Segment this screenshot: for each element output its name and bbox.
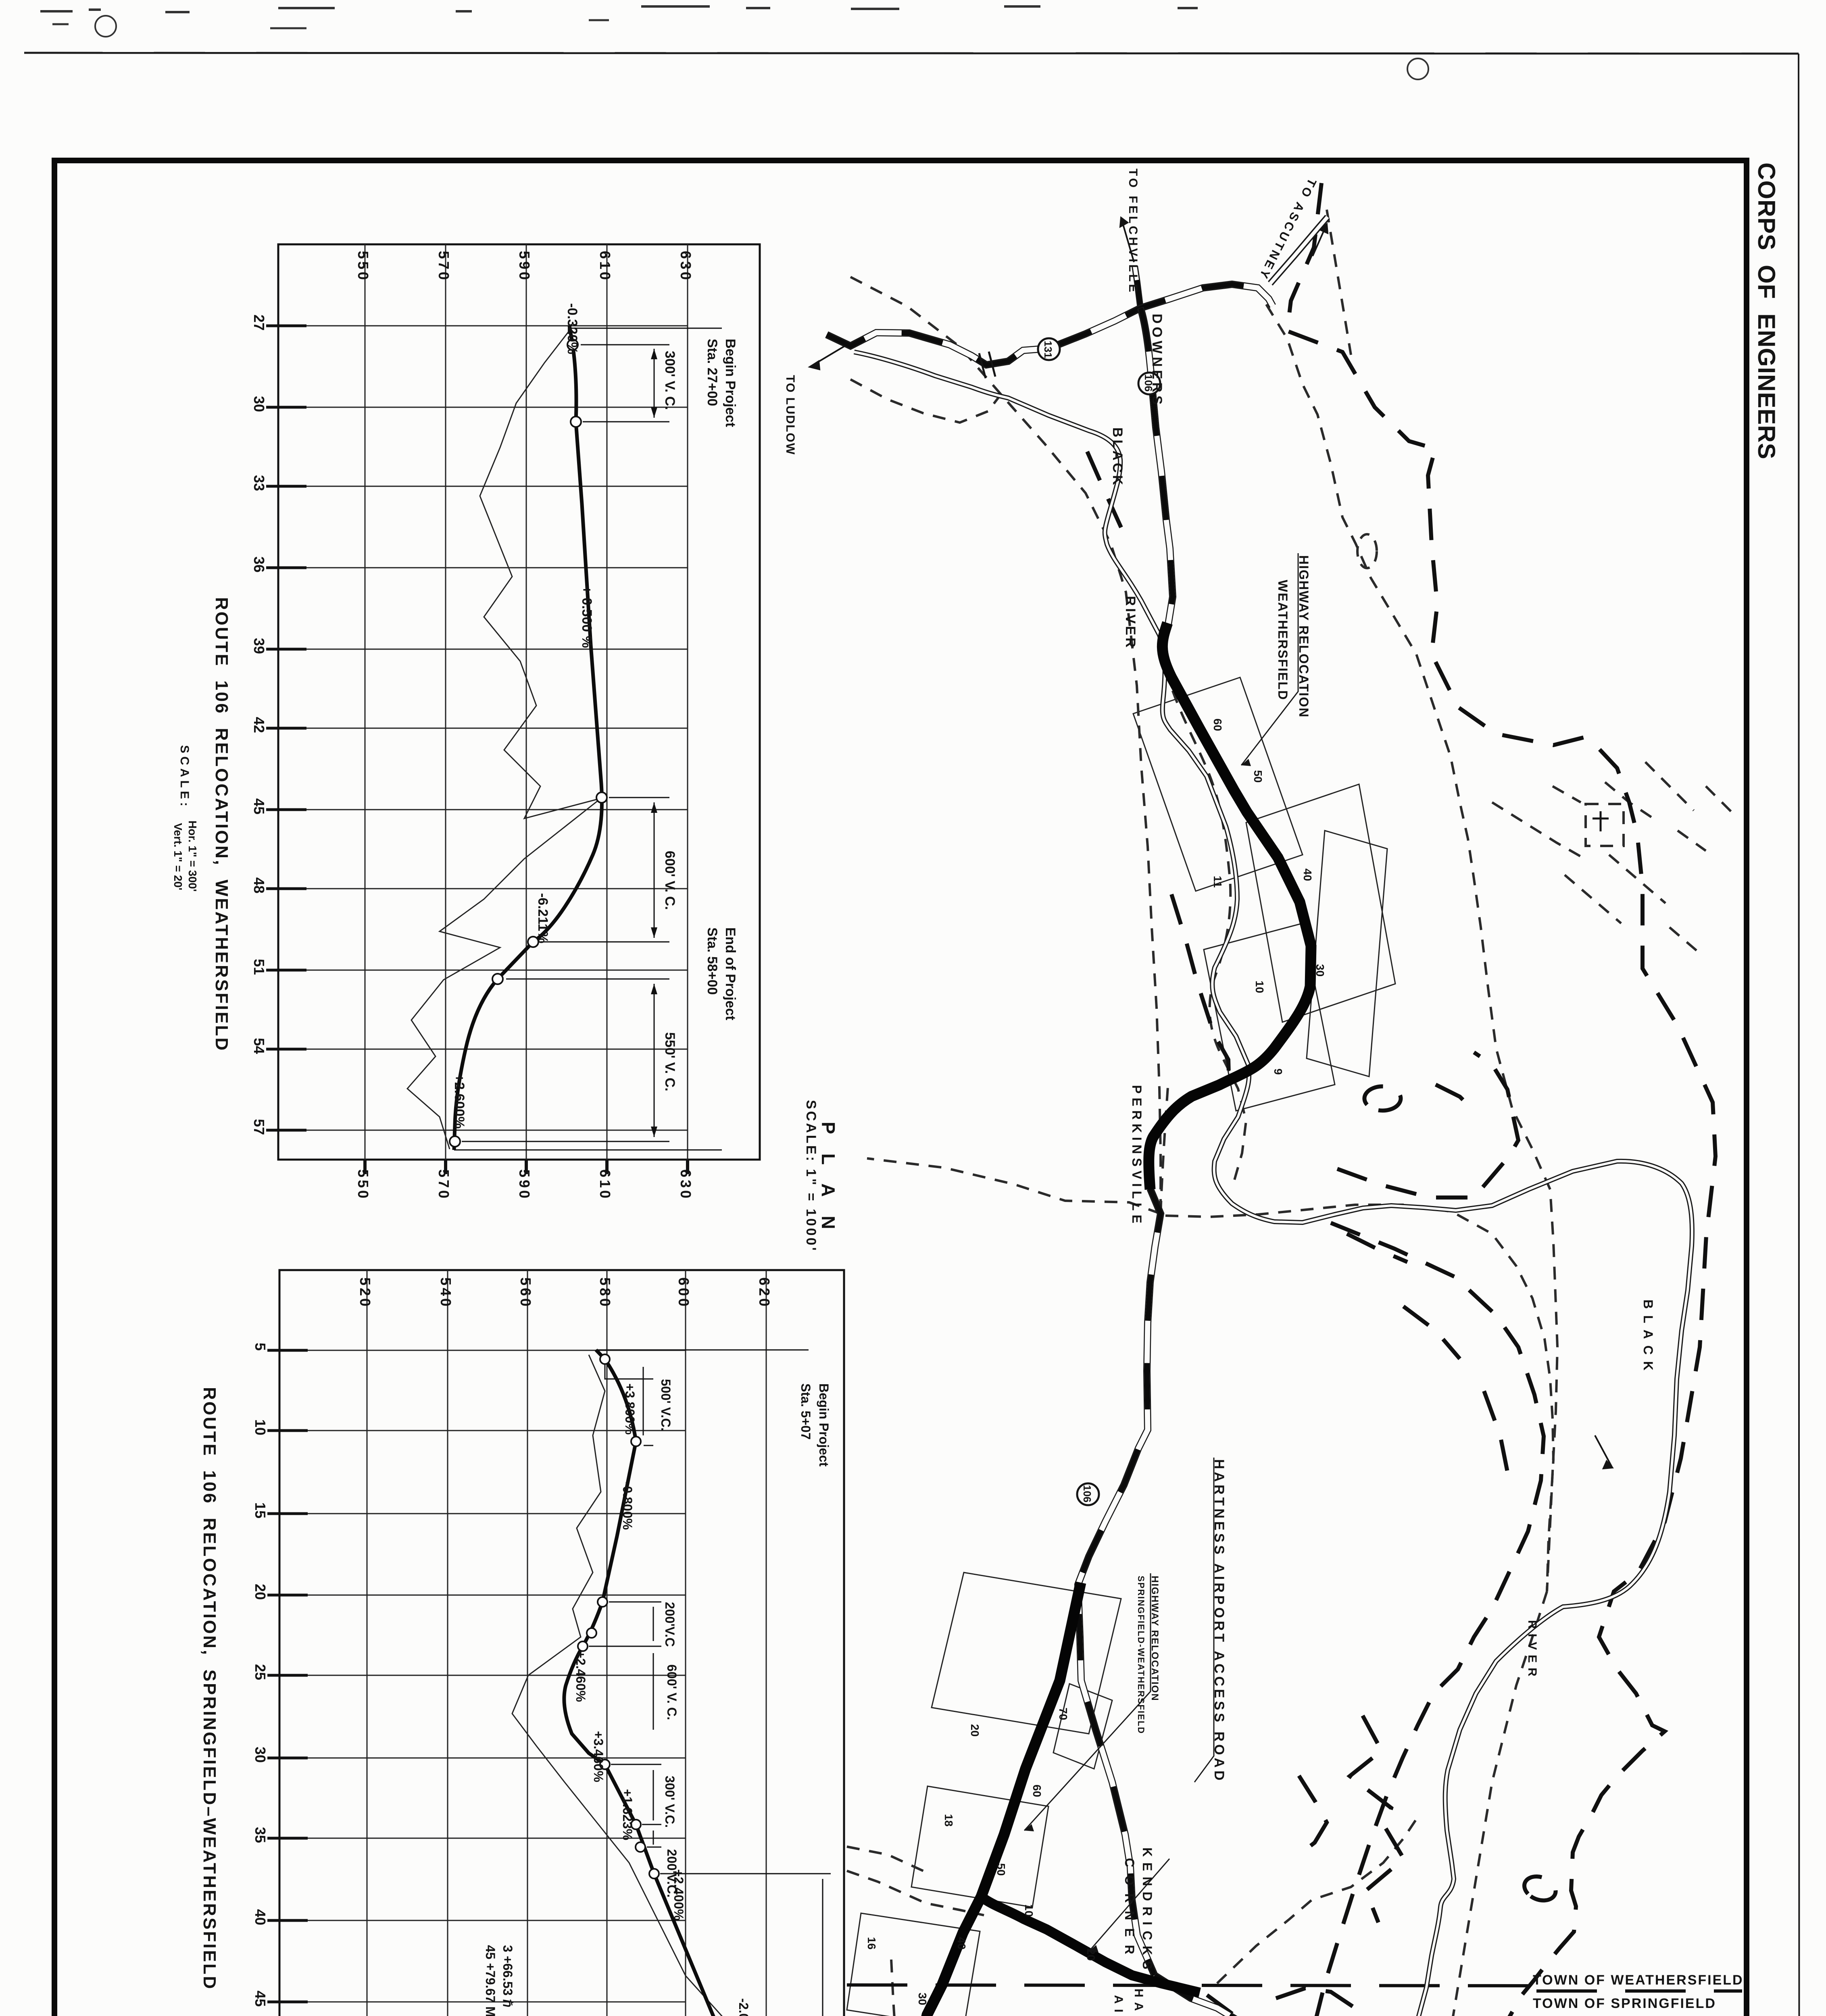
svg-text:590: 590 (516, 251, 533, 282)
svg-text:50: 50 (995, 1863, 1007, 1876)
svg-text:CORNER: CORNER (1122, 1858, 1137, 1962)
svg-text:BLACK: BLACK (1641, 1300, 1655, 1377)
svg-text:KENDRICKS: KENDRICKS (1140, 1847, 1155, 1975)
svg-text:HARTNESS AIRPORT ACCESS ROA: HARTNESS AIRPORT ACCESS ROAD (1211, 1459, 1227, 1783)
svg-text:630: 630 (677, 1169, 694, 1201)
svg-text:WEATHERSFIELD: WEATHERSFIELD (1276, 580, 1290, 700)
svg-text:-0.800%: -0.800% (620, 1482, 635, 1530)
svg-text:End of Project: End of Project (723, 927, 738, 1020)
svg-text:+2.460%: +2.460% (573, 1651, 588, 1702)
svg-text:SCALE:: SCALE: (178, 745, 191, 810)
svg-text:630: 630 (677, 251, 694, 282)
svg-text:SCALE: 1" = 1000': SCALE: 1" = 1000' (803, 1100, 819, 1253)
svg-text:TOWN OF WEATHERSFIELD: TOWN OF WEATHERSFIELD (1533, 1972, 1744, 1988)
svg-text:Hor. 1" = 300': Hor. 1" = 300' (186, 821, 199, 891)
svg-text:-6.211%: -6.211% (535, 893, 550, 943)
svg-text:+3.800%: +3.800% (623, 1383, 637, 1435)
svg-text:45 +79.67 M =: 45 +79.67 M = (483, 1945, 498, 2016)
svg-text:40: 40 (955, 1937, 968, 1949)
svg-text:+1.623%: +1.623% (620, 1789, 635, 1840)
svg-text:550: 550 (355, 251, 371, 282)
svg-text:Begin Project: Begin Project (817, 1383, 831, 1467)
svg-text:33: 33 (251, 475, 267, 491)
svg-text:40: 40 (252, 1909, 269, 1925)
svg-text:560: 560 (517, 1277, 534, 1309)
svg-text:600' V. C.: 600' V. C. (665, 1664, 679, 1720)
svg-text:TO LUDLOW: TO LUDLOW (784, 375, 797, 455)
svg-text:45: 45 (251, 798, 267, 814)
svg-text:HARTNESS: HARTNESS (1132, 1989, 1145, 2016)
svg-text:106: 106 (1081, 1485, 1093, 1502)
svg-text:45: 45 (252, 1991, 269, 2007)
svg-text:550' V. C.: 550' V. C. (662, 1032, 677, 1091)
svg-text:60: 60 (1211, 719, 1224, 731)
svg-text:CORPS OF ENGINEERS: CORPS OF ENGINEERS (1753, 162, 1780, 460)
svg-text:DOWNERS: DOWNERS (1149, 314, 1165, 408)
svg-text:570: 570 (436, 251, 452, 282)
svg-text:51: 51 (251, 959, 267, 975)
svg-text:600: 600 (675, 1277, 692, 1309)
svg-text:520: 520 (357, 1277, 373, 1309)
svg-text:36: 36 (251, 556, 267, 573)
svg-text:20: 20 (252, 1584, 269, 1600)
svg-text:ROUTE 106 RELOCATION, WEATH: ROUTE 106 RELOCATION, WEATHERSFIELD (212, 597, 231, 1052)
svg-text:300' V. C.: 300' V. C. (662, 351, 677, 410)
svg-text:16: 16 (865, 1937, 878, 1949)
svg-text:70: 70 (1057, 1708, 1069, 1720)
svg-text:30: 30 (1314, 964, 1326, 977)
svg-text:30: 30 (251, 396, 267, 412)
svg-text:131: 131 (1042, 341, 1054, 358)
svg-text:HIGHWAY RELOCATION: HIGHWAY RELOCATION (1297, 555, 1311, 718)
svg-text:-2.080%: -2.080% (736, 1998, 751, 2016)
svg-text:Sta. 58+00: Sta. 58+00 (705, 927, 720, 995)
svg-text:50: 50 (1252, 770, 1264, 783)
svg-text:600' V. C.: 600' V. C. (662, 851, 677, 910)
svg-text:18: 18 (942, 1814, 955, 1826)
svg-text:540: 540 (438, 1277, 454, 1309)
svg-text:HIGHWAY RELOCATION: HIGHWAY RELOCATION (1149, 1576, 1160, 1702)
svg-text:TOWN OF SPRINGFIELD: TOWN OF SPRINGFIELD (1533, 1996, 1716, 2011)
svg-text:550: 550 (355, 1169, 371, 1201)
svg-text:10: 10 (252, 1419, 269, 1435)
svg-text:3 +66.53 ℏ: 3 +66.53 ℏ (500, 1945, 515, 2008)
svg-text:15: 15 (252, 1502, 269, 1518)
svg-text:20: 20 (969, 1724, 981, 1737)
svg-text:Vert. 1" = 20': Vert. 1" = 20' (172, 823, 184, 890)
svg-text:35: 35 (252, 1827, 269, 1843)
svg-text:+ 0.500 %: + 0.500 % (579, 586, 594, 648)
svg-text:500' V.C.: 500' V.C. (659, 1379, 673, 1431)
svg-text:27: 27 (251, 314, 267, 331)
svg-text:ROUTE 106 RELOCATION, SPRIN: ROUTE 106 RELOCATION, SPRINGFIELD–WEATHE… (200, 1387, 219, 1990)
svg-text:39: 39 (251, 638, 267, 654)
svg-text:RIVER: RIVER (1123, 596, 1138, 650)
svg-text:+3.460%: +3.460% (591, 1731, 606, 1782)
svg-text:48: 48 (251, 877, 267, 893)
svg-text:+2.600%: +2.600% (452, 1074, 467, 1129)
svg-text:300' V.C.: 300' V.C. (663, 1776, 677, 1828)
svg-text:610: 610 (597, 1169, 613, 1201)
svg-text:PERKINSVILLE: PERKINSVILLE (1130, 1085, 1144, 1227)
svg-text:10: 10 (1023, 1904, 1035, 1917)
svg-text:590: 590 (516, 1169, 533, 1201)
svg-text:610: 610 (597, 251, 613, 282)
svg-text:TO FELCHVILLE: TO FELCHVILLE (1126, 169, 1140, 294)
svg-text:10: 10 (1253, 981, 1266, 993)
svg-text:BLACK: BLACK (1110, 427, 1125, 487)
svg-text:20: 20 (1085, 1948, 1097, 1961)
svg-text:SPRINGFIELD-WEATHERSFIELD: SPRINGFIELD-WEATHERSFIELD (1136, 1576, 1146, 1734)
svg-text:42: 42 (251, 717, 267, 733)
svg-text:5: 5 (252, 1343, 269, 1351)
svg-text:30: 30 (252, 1747, 269, 1763)
svg-text:P L A N: P L A N (818, 1122, 839, 1236)
svg-text:25: 25 (252, 1664, 269, 1680)
svg-text:30: 30 (916, 1993, 929, 2005)
svg-text:200'V.C: 200'V.C (663, 1602, 677, 1647)
svg-text:-0.320%: -0.320% (565, 303, 580, 354)
svg-text:57: 57 (251, 1119, 267, 1135)
svg-text:Sta. 5+07: Sta. 5+07 (798, 1383, 813, 1440)
svg-text:Begin Project: Begin Project (723, 339, 738, 427)
svg-text:580: 580 (597, 1277, 613, 1309)
svg-text:+2.400%: +2.400% (671, 1869, 686, 1920)
svg-text:RIVER: RIVER (1526, 1620, 1539, 1681)
svg-text:54: 54 (251, 1038, 267, 1054)
svg-text:60: 60 (1031, 1785, 1043, 1797)
svg-text:9: 9 (1272, 1068, 1284, 1075)
svg-text:11: 11 (1211, 876, 1224, 888)
svg-text:570: 570 (436, 1169, 452, 1201)
svg-text:AIRPORT: AIRPORT (1112, 1995, 1125, 2016)
svg-text:Sta. 27+00: Sta. 27+00 (705, 339, 720, 406)
svg-text:620: 620 (756, 1277, 773, 1309)
svg-text:40: 40 (1301, 868, 1314, 881)
